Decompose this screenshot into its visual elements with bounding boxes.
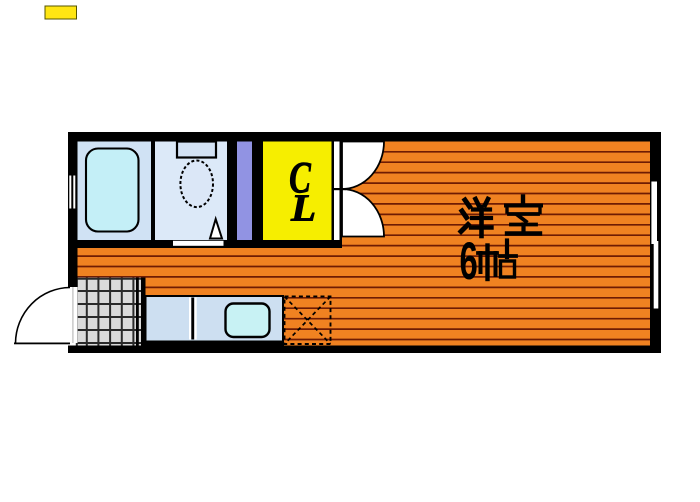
svg-text:L: L — [290, 187, 316, 229]
svg-text:6: 6 — [460, 232, 478, 291]
